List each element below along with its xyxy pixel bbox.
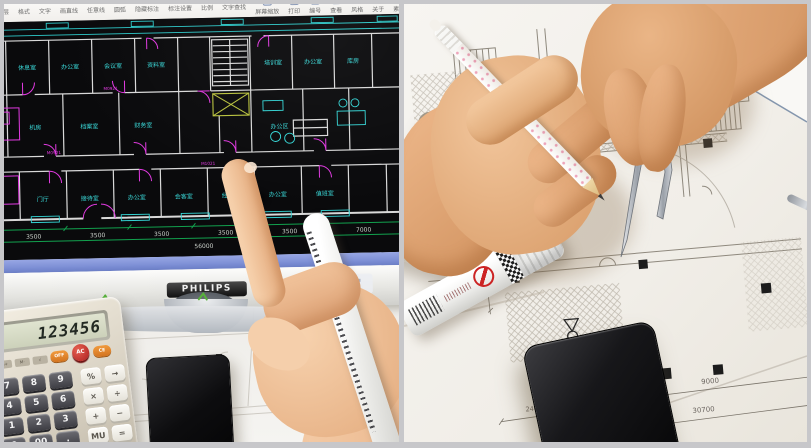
smartphone: [521, 320, 684, 442]
menu-icon-item: 查看: [330, 4, 342, 14]
num-key: 00: [29, 433, 54, 442]
op-key: −: [109, 404, 131, 422]
calculator-display: 123456: [4, 313, 107, 350]
photo-composite: 图层 格式 文字 画直线 任意线 圆弧 隐藏标注 标注设置 比例 文字查找 屏幕…: [0, 0, 811, 448]
menu-icon-item: 编号: [309, 4, 321, 14]
memory-key: M-: [14, 357, 30, 367]
menu-icon-item: 打印: [288, 4, 300, 15]
num-key: 5: [24, 394, 49, 413]
svg-text:9000: 9000: [701, 377, 719, 387]
left-photo-cad-monitor: 图层 格式 文字 画直线 任意线 圆弧 隐藏标注 标注设置 比例 文字查找 屏幕…: [4, 4, 399, 442]
op-key: +: [85, 407, 107, 425]
op-key: ×: [83, 387, 105, 405]
calculator: 123456 M+ M- √ OFF AC CE 7 8 9 4 5 6 1 2…: [4, 296, 139, 442]
menu-item: 任意线: [87, 5, 105, 14]
num-key: 2: [26, 413, 51, 432]
ce-key: CE: [92, 344, 111, 357]
menu-icon-item: 素材: [393, 4, 399, 13]
menu-item: 比例: [201, 4, 213, 12]
smartphone: [145, 354, 234, 442]
ac-key: AC: [71, 343, 90, 362]
marker-barcode: [408, 294, 445, 325]
tool-icon: [262, 4, 271, 5]
svg-text:30700: 30700: [692, 405, 715, 415]
menu-item-label: 查看: [330, 5, 342, 14]
menu-item: 圆弧: [114, 4, 126, 13]
menu-item-label: 编号: [309, 5, 321, 14]
leaf-decoration: [200, 292, 210, 302]
menu-icon-item: 风格: [351, 4, 363, 13]
op-key: ÷: [106, 384, 128, 402]
marker-fine-print: [444, 282, 472, 302]
menu-icon-item: 关于: [372, 4, 384, 13]
calculator-operator-keys: % → × ÷ + − MU =: [80, 364, 133, 442]
num-key: 9: [48, 370, 73, 389]
leaf: [202, 292, 208, 301]
calculator-numpad: 7 8 9 4 5 6 1 2 3 0 00 .: [4, 370, 83, 442]
num-key: 7: [4, 377, 20, 396]
menu-item-label: 打印: [288, 5, 300, 14]
memory-key: M+: [4, 360, 12, 370]
menu-item: 文字查找: [222, 4, 246, 11]
memory-key: √: [32, 355, 48, 365]
op-key: →: [104, 364, 126, 382]
menu-item-label: 屏幕缩放: [255, 6, 279, 16]
num-key: 8: [22, 374, 47, 393]
menu-item-label: 素材: [393, 4, 399, 13]
menu-item: 文字: [39, 6, 51, 15]
op-key: =: [111, 423, 133, 441]
num-key: .: [56, 430, 81, 442]
menu-item-label: 风格: [351, 4, 363, 13]
menu-item: 格式: [18, 6, 30, 15]
num-key: 4: [4, 397, 22, 416]
menu-item: 图层: [4, 7, 9, 16]
menu-item: 隐藏标注: [135, 4, 159, 13]
num-key: 3: [53, 410, 78, 429]
cad-screen: 休息室 办公室 会议室 资料室 培训室 办公室 库房 机房 档案室 财务室 办公…: [4, 14, 399, 261]
op-key: %: [80, 367, 102, 385]
menu-icon-item: 屏幕缩放: [255, 4, 279, 15]
screen-glare: [4, 14, 399, 261]
off-key: OFF: [50, 350, 69, 363]
menu-item: 标注设置: [168, 4, 192, 12]
metal-pen-tip: [786, 193, 807, 215]
menu-item-label: 关于: [372, 4, 384, 13]
num-key: 0: [4, 437, 27, 442]
right-photo-blueprint-drafting: 9000 30700 2400 2000 2000 0 0 1 4: [404, 4, 807, 442]
num-key: 1: [4, 417, 24, 436]
num-key: 6: [51, 390, 76, 409]
menu-item: 画直线: [60, 5, 78, 14]
op-key: MU: [87, 426, 109, 442]
